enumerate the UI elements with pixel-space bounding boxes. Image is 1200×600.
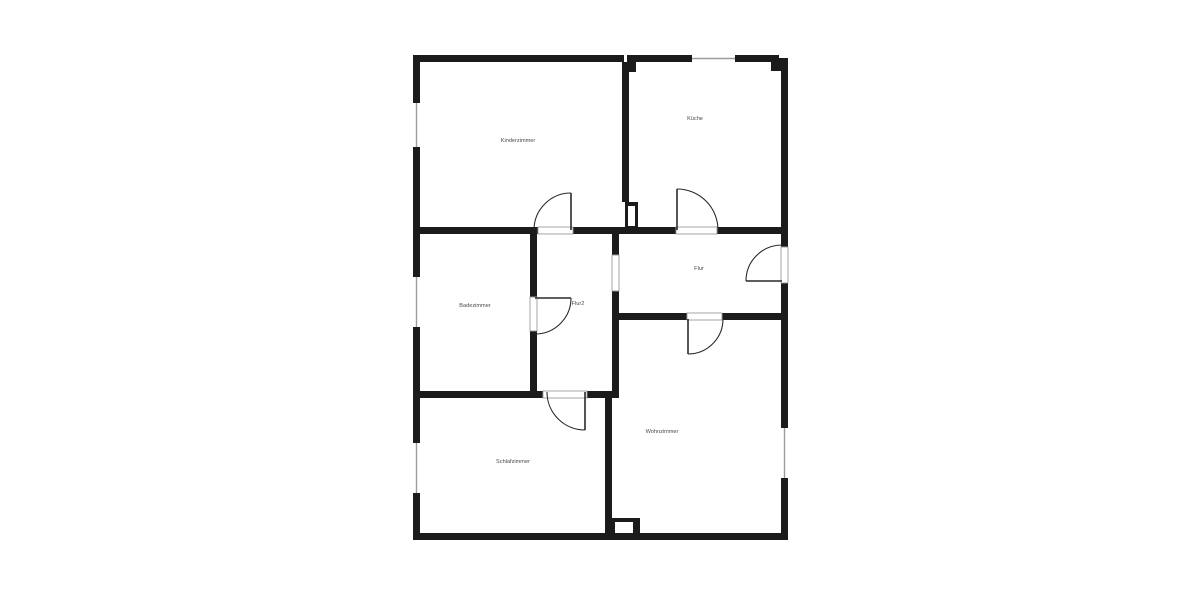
opening-badezimmer-door [530,297,537,331]
wall-kinder-kueche [622,62,629,202]
door-arc-kueche [677,189,718,230]
opening-entrance-door [781,247,788,283]
room-label-flur2: Flur2 [572,301,585,307]
door-arc-wohnzimmer [688,319,723,354]
room-label-badezimmer: Badezimmer [459,303,491,309]
wall-flur2-flur-a [612,230,619,255]
wall-flur2-flur-b [612,291,619,394]
opening-flur2-passage [612,255,619,291]
room-label-kueche: Küche [687,116,703,122]
floorplan-drawing: Kinderzimmer Küche Badezimmer Flur2 Flur… [0,0,1200,600]
wall-right-2 [781,283,788,428]
wall-left-3 [413,327,420,443]
wall-top-2 [627,55,692,62]
wall-schlaf-top-b [587,391,619,398]
wall-flur-bottom-b [722,313,781,320]
wall-top-1 [413,55,624,62]
room-labels: Kinderzimmer Küche Badezimmer Flur2 Flur… [459,116,704,465]
wall-left-4 [413,493,420,540]
door-arc-entrance [746,245,782,281]
door-openings [530,227,788,398]
wall-mid-h1a [413,227,538,234]
exterior-walls [413,55,788,540]
opening-wohnzimmer-door [687,313,722,320]
opening-kueche-door [676,227,717,234]
opening-kinderzimmer-door [538,227,573,234]
chimney-slot [615,522,633,533]
room-label-kinderzimmer: Kinderzimmer [501,138,536,144]
opening-schlafzimmer-door [543,391,587,398]
wall-mid-h1b [573,227,676,234]
wall-mid-h1c [717,227,781,234]
wall-bottom [413,533,788,540]
room-label-schlafzimmer: Schlafzimmer [496,459,530,465]
shaft-void [628,206,635,226]
wall-bad-flur2-b [530,331,537,394]
windows [417,59,785,494]
room-label-flur: Flur [694,266,704,272]
wall-right-1 [781,60,788,247]
wall-schlaf-top-a [413,391,543,398]
wall-schlaf-wohn [605,391,612,533]
wall-left-2 [413,147,420,277]
wall-right-3 [781,478,788,540]
door-arc-kinderzimmer [534,193,571,230]
wall-left-1 [413,55,420,103]
room-label-wohnzimmer: Wohnzimmer [646,429,679,435]
interior-walls [413,62,781,533]
wall-bad-flur2-a [530,230,537,297]
door-arc-badezimmer [535,298,571,334]
floorplan-canvas: Kinderzimmer Küche Badezimmer Flur2 Flur… [0,0,1200,600]
wall-flur-bottom-a [612,313,687,320]
